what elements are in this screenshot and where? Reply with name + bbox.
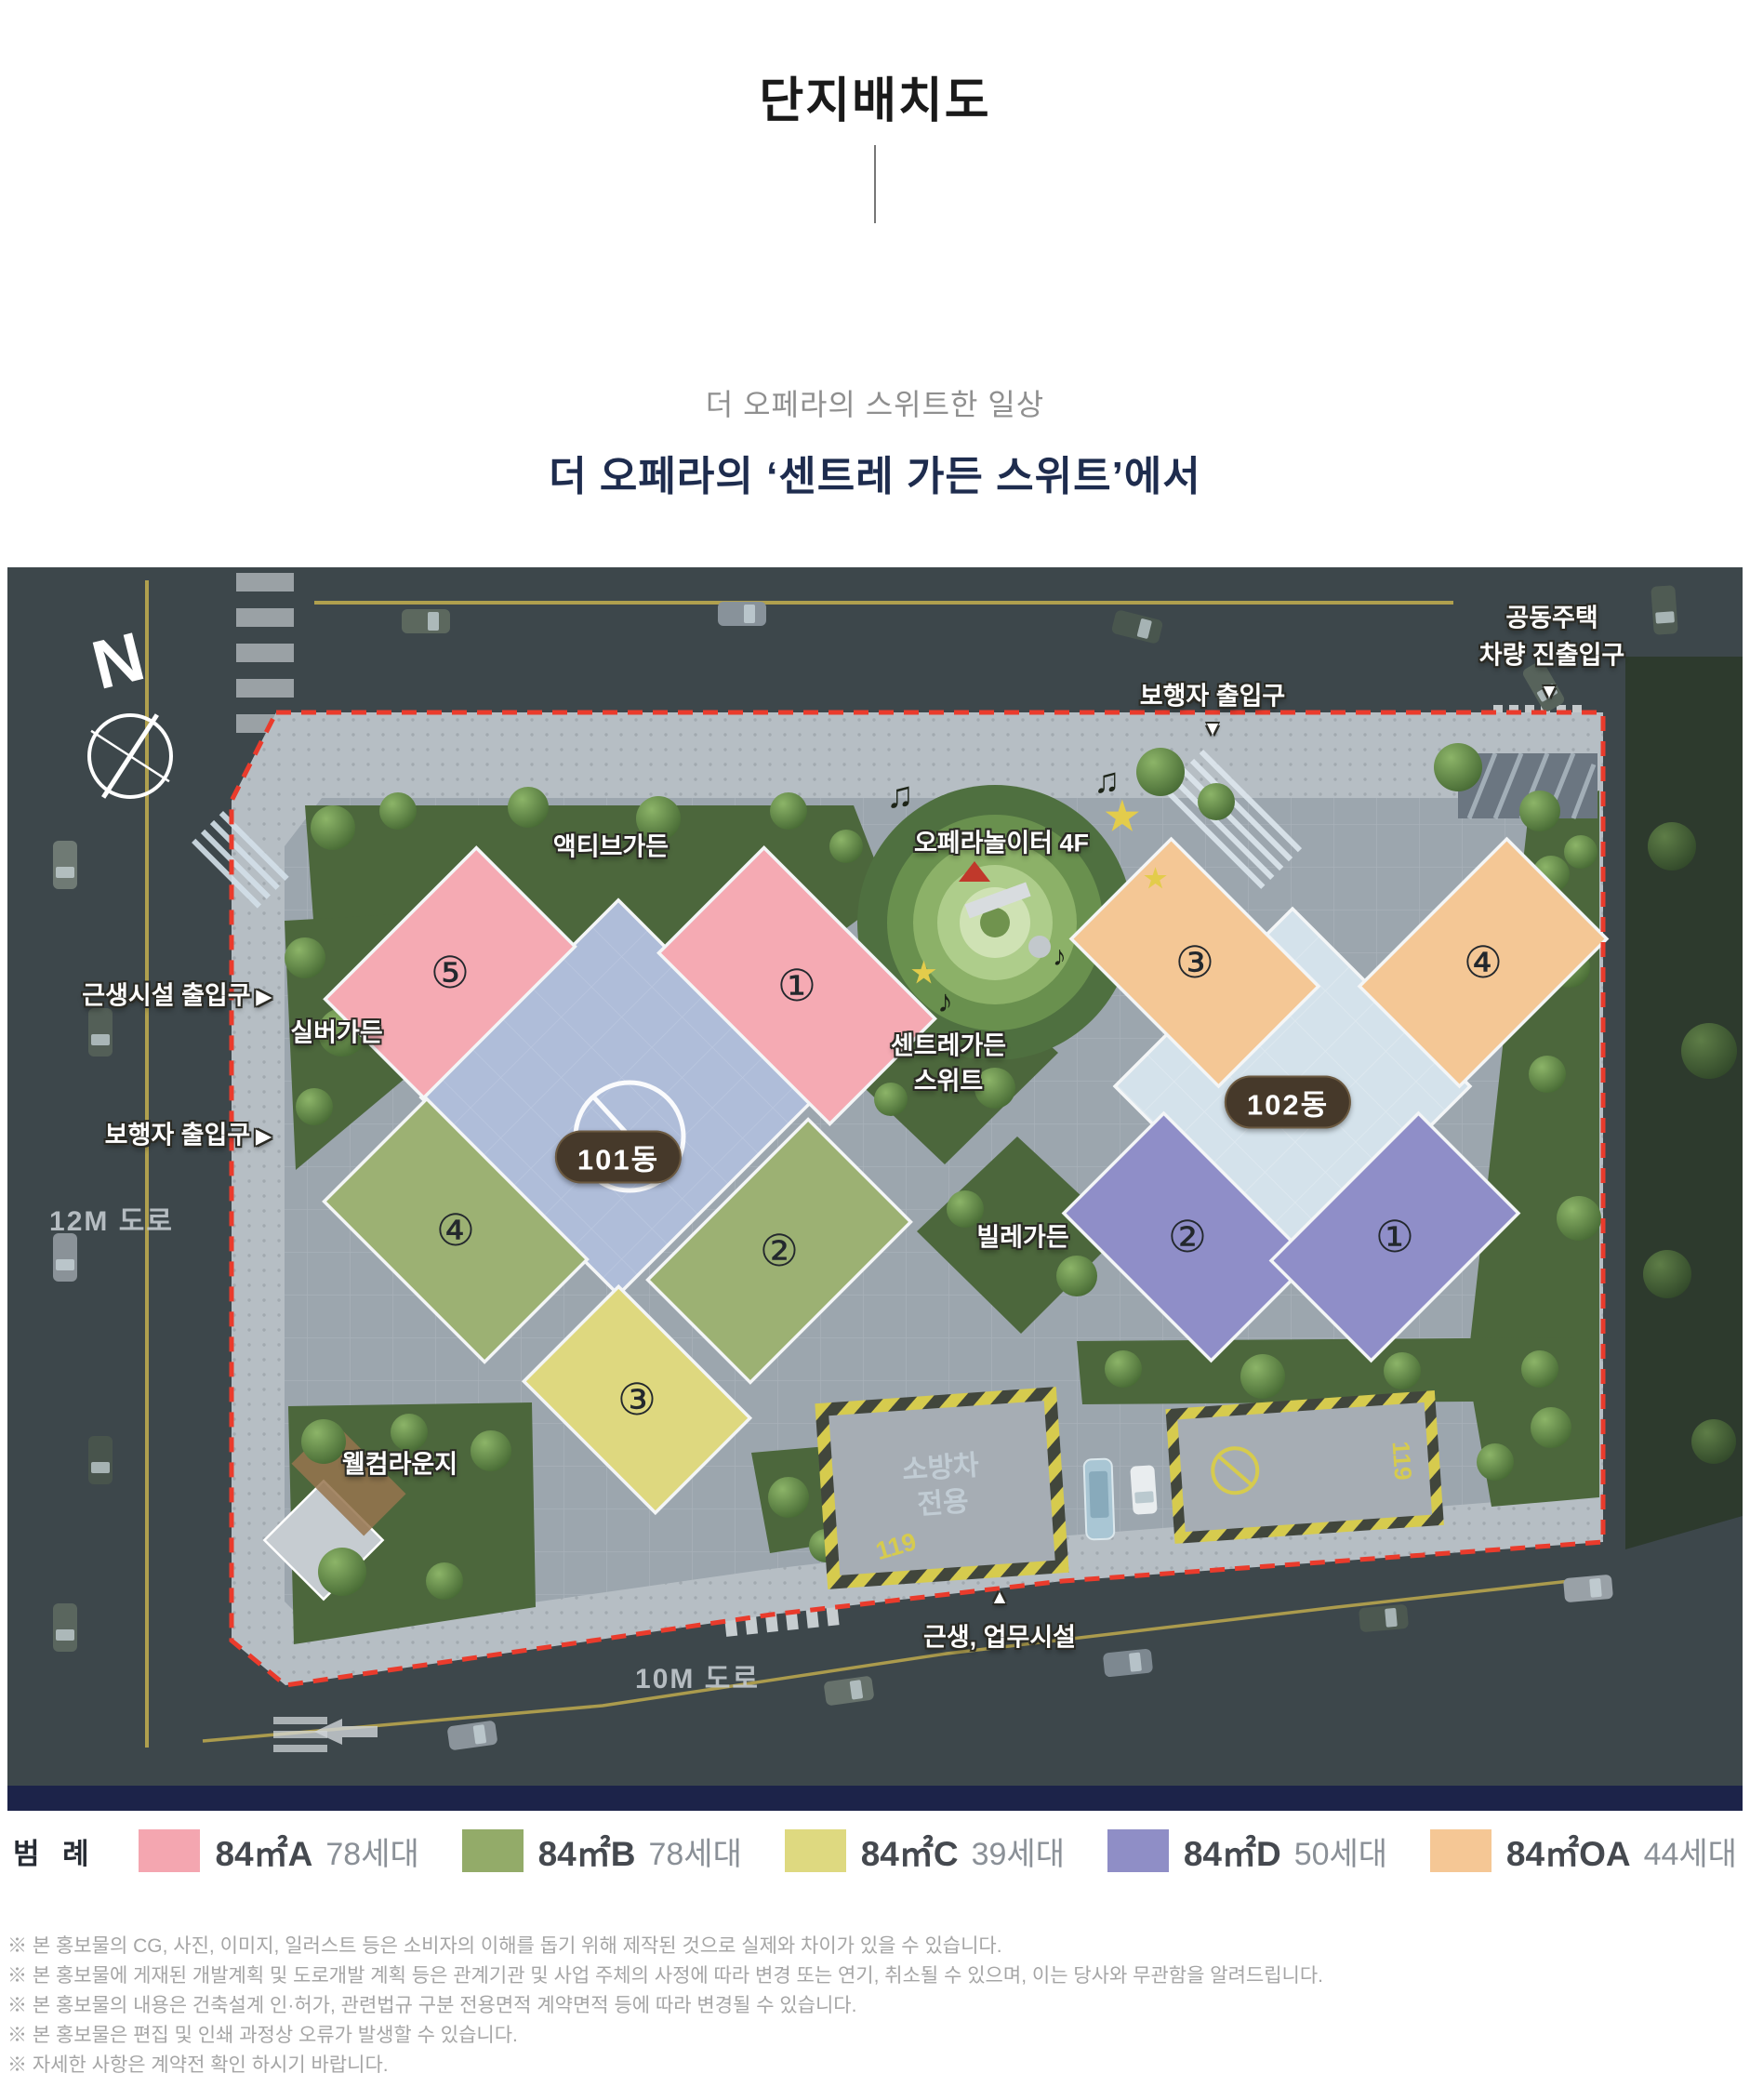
- unit-number-101-3: ③: [617, 1374, 656, 1426]
- music-note-icon: ♪: [1053, 941, 1067, 972]
- label-retail-entrance-left: 근생시설 출입구▶: [82, 976, 272, 1012]
- legend-title: 범 례: [13, 1830, 97, 1872]
- legend-item-84a: 84㎡A 78세대: [139, 1826, 418, 1876]
- fire-lane-zone: 소방차 전용 119: [815, 1387, 1068, 1589]
- building-tag-102: 102동: [1225, 1076, 1351, 1129]
- unit-number-101-4: ④: [436, 1204, 475, 1256]
- label-vehicle-entrance-line2: 차량 진출입구: [1479, 635, 1625, 671]
- svg-text:소방차: 소방차: [901, 1450, 980, 1486]
- legend-label: 84㎡D: [1184, 1826, 1281, 1876]
- site-plan-map: 소방차 전용 119 119: [7, 567, 1743, 1786]
- outside-greenbelt: [1625, 657, 1743, 1549]
- label-opera-playground: 오페라놀이터 4F: [914, 823, 1089, 859]
- music-note-icon: ♪: [937, 984, 953, 1019]
- divider-line: [874, 145, 876, 223]
- unit-number-102-2: ②: [1168, 1211, 1207, 1263]
- brochure-page: 단지배치도 더 오페라의 스위트한 일상 더 오페라의 ‘센트레 가든 스위트’…: [0, 0, 1750, 2100]
- unit-number-101-5: ⑤: [431, 947, 470, 999]
- right-triangle-icon: ▶: [256, 1126, 271, 1148]
- unit-number-101-1: ①: [777, 960, 816, 1012]
- building-tag-101: 101동: [555, 1131, 682, 1184]
- unit-number-102-4: ④: [1464, 937, 1503, 989]
- unit-number-102-1: ①: [1375, 1211, 1414, 1263]
- legend-label: 84㎡B: [538, 1826, 636, 1876]
- legend-swatch-84b: [462, 1829, 524, 1872]
- legend-swatch-84c: [785, 1829, 846, 1872]
- legend-swatch-84d: [1107, 1829, 1169, 1872]
- label-centre-garden-line2: 스위트: [914, 1061, 984, 1097]
- label-pedestrian-entrance-left: 보행자 출입구▶: [105, 1115, 272, 1151]
- svg-text:119: 119: [1387, 1441, 1418, 1482]
- no-parking-zone: 119: [1165, 1390, 1443, 1544]
- footnote-line: ※ 자세한 사항은 계약전 확인 하시기 바랍니다.: [7, 2055, 1737, 2076]
- legend-item-84oa: 84㎡OA 44세대: [1430, 1826, 1737, 1876]
- down-triangle-icon: ▼: [1540, 681, 1559, 703]
- unit-number-101-2: ②: [760, 1225, 799, 1277]
- footnote-line: ※ 본 홍보물의 내용은 건축설계 인·허가, 관련법규 구분 전용면적 계약면…: [7, 1996, 1737, 2016]
- subtitle-bold: 더 오페라의 ‘센트레 가든 스위트’에서: [0, 443, 1750, 502]
- footnote-line: ※ 본 홍보물은 편집 및 인쇄 과정상 오류가 발생할 수 있습니다.: [7, 2026, 1737, 2046]
- legend-swatch-84a: [139, 1829, 200, 1872]
- legend-count: 44세대: [1644, 1828, 1737, 1874]
- subtitle-light: 더 오페라의 스위트한 일상: [0, 381, 1750, 424]
- legend-count: 78세대: [325, 1828, 418, 1874]
- label-road-12m: 12M 도로: [49, 1198, 174, 1239]
- site-plan-illustration: 소방차 전용 119 119: [7, 567, 1743, 1786]
- unit-number-102-3: ③: [1175, 937, 1214, 989]
- star-icon: ★: [1105, 794, 1140, 838]
- legend-count: 39세대: [972, 1828, 1065, 1874]
- label-ville-garden: 빌레가든: [976, 1217, 1068, 1254]
- label-silver-garden: 실버가든: [290, 1013, 382, 1049]
- legend-label: 84㎡OA: [1506, 1826, 1631, 1876]
- map-footer-bar: [7, 1786, 1743, 1811]
- legend-item-84b: 84㎡B 78세대: [462, 1826, 742, 1876]
- legend-label: 84㎡C: [861, 1826, 959, 1876]
- legend: 범 례 84㎡A 78세대 84㎡B 78세대 84㎡C 39세대 84㎡D 5…: [7, 1821, 1743, 1881]
- footnote-line: ※ 본 홍보물에 게재된 개발계획 및 도로개발 계획 등은 관계기관 및 사업…: [7, 1966, 1737, 1987]
- legend-swatch-84oa: [1430, 1829, 1491, 1872]
- up-triangle-icon: ▲: [990, 1587, 1010, 1609]
- label-welcome-lounge: 웰컴라운지: [342, 1444, 457, 1481]
- page-title: 단지배치도: [0, 61, 1750, 131]
- legend-item-84d: 84㎡D 50세대: [1107, 1826, 1387, 1876]
- legend-count: 78세대: [648, 1828, 741, 1874]
- right-triangle-icon: ▶: [257, 987, 272, 1008]
- label-vehicle-entrance-line1: 공동주택: [1505, 598, 1598, 634]
- footnote-line: ※ 본 홍보물의 CG, 사진, 이미지, 일러스트 등은 소비자의 이해를 돕…: [7, 1936, 1737, 1957]
- label-active-garden: 액티브가든: [553, 827, 669, 863]
- legend-item-84c: 84㎡C 39세대: [785, 1826, 1065, 1876]
- label-pedestrian-entrance-top: 보행자 출입구: [1140, 676, 1286, 712]
- label-road-10m: 10M 도로: [635, 1655, 760, 1696]
- footnotes: ※ 본 홍보물의 CG, 사진, 이미지, 일러스트 등은 소비자의 이해를 돕…: [7, 1936, 1737, 2085]
- legend-count: 50세대: [1294, 1828, 1387, 1874]
- down-triangle-icon: ▼: [1203, 718, 1223, 740]
- svg-text:전용: 전용: [916, 1486, 969, 1521]
- shuttle-bus: [1084, 1459, 1115, 1540]
- music-note-icon: ♫: [886, 775, 914, 816]
- label-retail-office: 근생, 업무시설: [923, 1617, 1076, 1654]
- label-centre-garden-line1: 센트레가든: [891, 1026, 1006, 1062]
- star-icon: ★: [911, 958, 936, 989]
- star-icon: ★: [1144, 864, 1167, 893]
- legend-label: 84㎡A: [215, 1826, 312, 1876]
